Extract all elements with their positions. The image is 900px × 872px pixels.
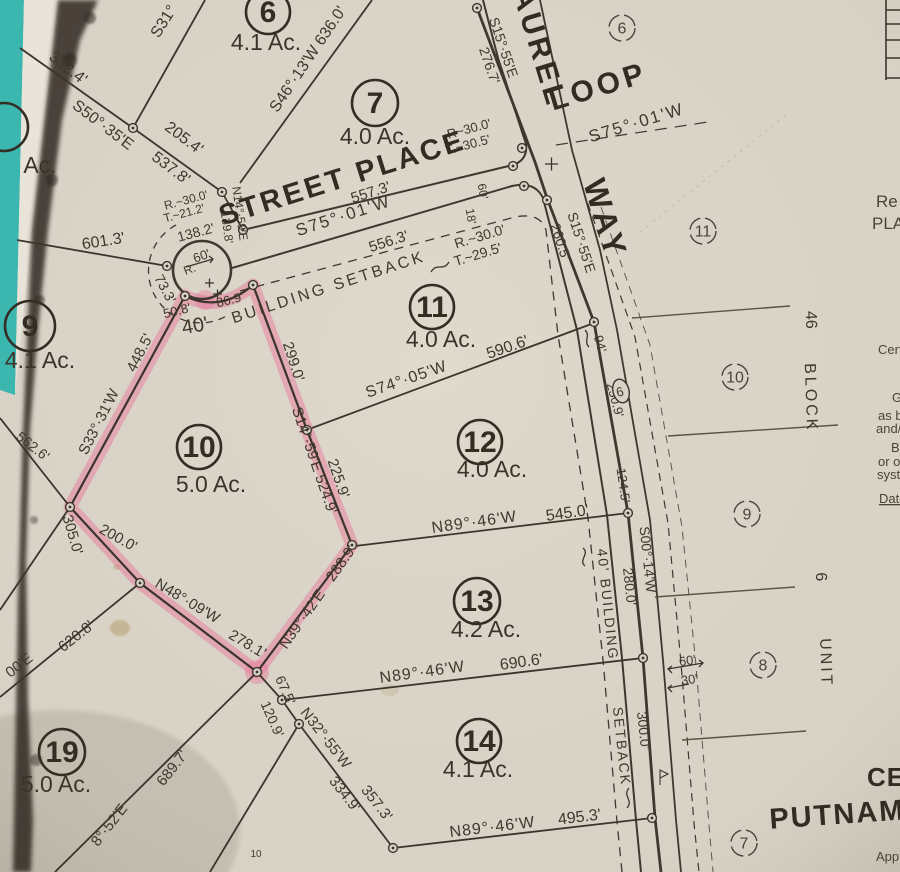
margin-note: Be	[891, 440, 900, 455]
street-name: CE	[867, 762, 900, 792]
lot-acreage: 4.0 Ac.	[340, 123, 410, 149]
survey-label: 10	[250, 849, 262, 860]
adjacent-lot-number: 8	[759, 658, 768, 675]
lot-number: 6	[260, 0, 277, 29]
adjacent-lot-number: 7	[740, 836, 749, 853]
survey-label: 46	[802, 311, 820, 329]
adjacent-lot-number: 11	[695, 224, 712, 241]
lot-acreage: 4.0 Ac.	[457, 456, 527, 482]
margin-note: Ge	[892, 390, 900, 405]
lot-number: 13	[460, 585, 493, 618]
margin-note: PLA	[872, 214, 900, 233]
lot-number: 7	[367, 87, 384, 120]
lot-number: 11	[416, 291, 448, 324]
lot-acreage: 5.0 Ac.	[176, 471, 246, 497]
plat-map-canvas: 332.4'S50°·35'E537.8'205.4'S31°S46°·13'W…	[0, 0, 900, 872]
margin-note: Appr	[876, 849, 900, 864]
lot-number: 14	[462, 725, 496, 758]
lot-number: 9	[22, 310, 39, 343]
lot-acreage: 4.1 Ac.	[5, 347, 75, 373]
margin-note: syste	[877, 467, 900, 482]
lot-acreage: 4.0 Ac.	[406, 326, 476, 352]
lot-acreage: Ac.	[23, 152, 56, 178]
lot-number: 10	[182, 431, 215, 464]
survey-label: 6	[812, 572, 829, 582]
survey-label: 60'	[475, 182, 492, 200]
lot-acreage: 4.2 Ac.	[451, 616, 521, 642]
lot-acreage: 4.1 Ac.	[231, 29, 301, 55]
adjacent-lot-number: 9	[743, 507, 752, 524]
survey-label: 40'	[180, 313, 210, 339]
margin-note: Date	[879, 491, 900, 506]
lot-number: 19	[45, 736, 78, 769]
adjacent-lot-number: 6	[618, 21, 627, 38]
survey-label: 18'	[463, 207, 480, 225]
survey-label: UNIT	[816, 638, 835, 688]
survey-label: BLOCK	[801, 363, 820, 433]
margin-note: Re	[876, 192, 898, 211]
paper-stain	[110, 620, 130, 636]
survey-label: 30'	[680, 671, 699, 688]
margin-note: and/o	[876, 421, 900, 436]
lot-acreage: 5.0 Ac.	[21, 771, 91, 797]
lot-acreage: 4.1 Ac.	[443, 756, 513, 782]
margin-note: Cert	[878, 342, 900, 357]
adjacent-lot-number: 10	[726, 370, 744, 387]
survey-label: 60'	[678, 652, 697, 669]
plat-map-scan: 332.4'S50°·35'E537.8'205.4'S31°S46°·13'W…	[0, 0, 900, 872]
lot-number: 12	[463, 426, 496, 459]
